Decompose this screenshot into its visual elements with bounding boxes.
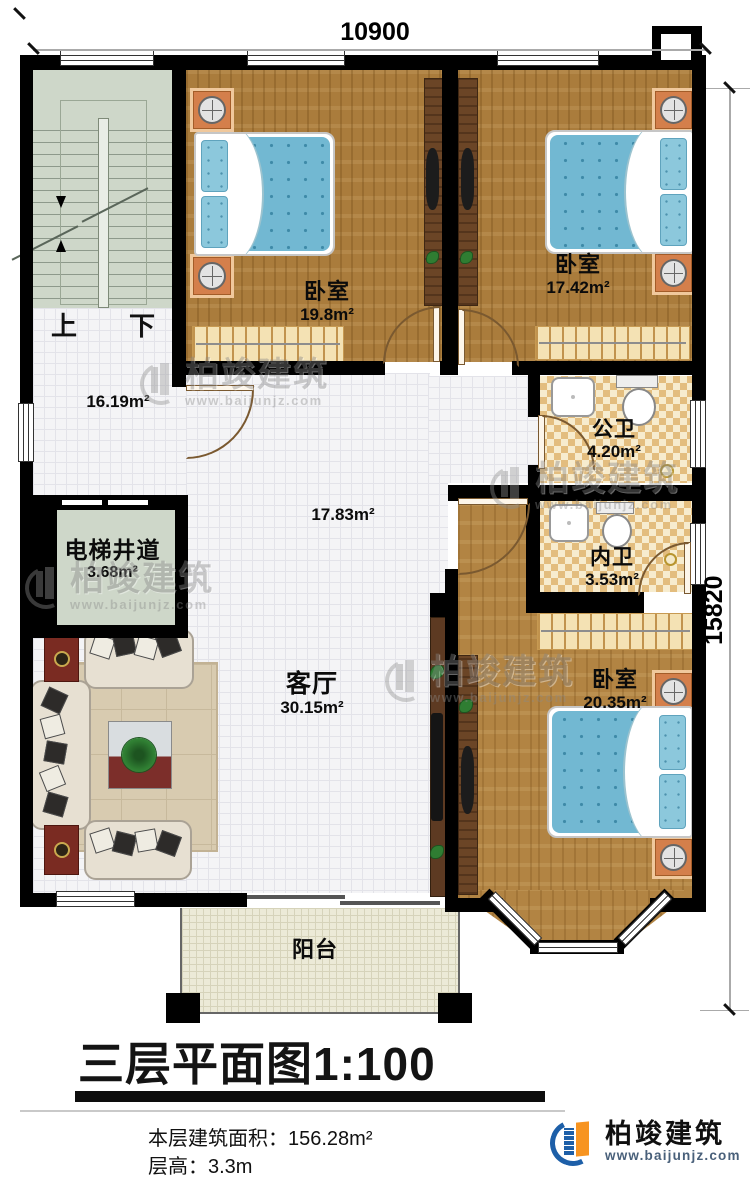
plan-scale: 1:100 bbox=[313, 1038, 436, 1090]
dimension-line-right bbox=[729, 88, 731, 1010]
wall bbox=[172, 55, 186, 387]
room-name: 内卫 bbox=[566, 546, 658, 570]
window bbox=[56, 891, 135, 907]
wall bbox=[692, 55, 706, 910]
company-logo: 柏竣建筑 www.baijunjz.com bbox=[550, 1112, 746, 1176]
floor-plan: 卧室 19.8m² 卧室 17.42m² 卧室 20.35m² 公卫 4.20m… bbox=[0, 0, 750, 1182]
nightstand bbox=[190, 88, 234, 132]
balcony-post bbox=[166, 993, 200, 1023]
plan-title-text: 三层平面图 bbox=[78, 1038, 313, 1090]
room-label-living: 客厅 30.15m² bbox=[252, 670, 372, 717]
pillow bbox=[660, 194, 687, 246]
wardrobe bbox=[535, 326, 690, 360]
company-logo-icon bbox=[550, 1118, 598, 1168]
sliding-door bbox=[340, 901, 440, 905]
wall bbox=[172, 361, 385, 375]
room-area: 17.42m² bbox=[508, 278, 648, 297]
toilet-icon bbox=[602, 514, 632, 548]
bed bbox=[194, 132, 335, 256]
toilet-tank-icon bbox=[596, 502, 634, 514]
room-label-corridor: 17.83m² bbox=[278, 505, 408, 524]
room-name: 电梯井道 bbox=[40, 538, 185, 564]
wall bbox=[132, 893, 247, 907]
tv-icon bbox=[431, 713, 443, 821]
room-name: 客厅 bbox=[252, 670, 372, 698]
wall bbox=[20, 55, 33, 905]
chair bbox=[426, 148, 439, 210]
lamp-icon bbox=[660, 259, 687, 287]
wall bbox=[512, 361, 705, 375]
wardrobe bbox=[537, 613, 694, 650]
chimney-flue bbox=[661, 34, 691, 60]
room-name: 卧室 bbox=[508, 253, 648, 278]
wall bbox=[440, 361, 458, 375]
floor-area-text: 本层建筑面积：156.28m² bbox=[148, 1122, 373, 1151]
dimension-right-value: 15820 bbox=[700, 515, 729, 645]
company-name: 柏竣建筑 bbox=[605, 1112, 725, 1151]
bay-window bbox=[538, 942, 618, 953]
side-table bbox=[44, 636, 79, 682]
nightstand bbox=[652, 836, 695, 879]
divider-line bbox=[20, 1110, 565, 1112]
toilet-tank-icon bbox=[616, 375, 658, 388]
elevator-door-mark bbox=[62, 500, 102, 505]
plan-title: 三层平面图1:100 bbox=[78, 1028, 436, 1094]
company-url: www.baijunjz.com bbox=[605, 1148, 741, 1163]
room-area: 19.8m² bbox=[257, 305, 397, 324]
bed bbox=[545, 130, 694, 254]
dimension-tick bbox=[13, 7, 26, 20]
bed bbox=[547, 706, 693, 838]
window bbox=[497, 50, 599, 66]
lamp-icon bbox=[198, 96, 226, 124]
room-area: 4.20m² bbox=[568, 442, 660, 461]
wardrobe-rod bbox=[541, 630, 690, 632]
room-label-inner-bath: 内卫 3.53m² bbox=[566, 546, 658, 589]
stairs-down-label: 下 bbox=[129, 306, 155, 343]
dimension-top-value: 10900 bbox=[300, 18, 450, 47]
room-label-elevator: 电梯井道 3.68m² bbox=[40, 538, 185, 582]
room-name: 公卫 bbox=[568, 418, 660, 442]
elevator-door-mark bbox=[108, 500, 148, 505]
floor-drain-icon bbox=[660, 464, 674, 478]
wall bbox=[430, 593, 458, 617]
wall bbox=[445, 569, 458, 905]
sliding-door bbox=[247, 895, 345, 899]
lamp-icon bbox=[54, 842, 70, 858]
dimension-ext-line bbox=[700, 1010, 749, 1011]
window bbox=[247, 50, 345, 66]
window bbox=[18, 403, 34, 462]
room-label-balcony: 阳台 bbox=[275, 938, 355, 963]
room-name: 卧室 bbox=[545, 668, 685, 693]
wardrobe bbox=[192, 326, 344, 362]
title-underline-bar bbox=[75, 1091, 545, 1102]
pillow bbox=[660, 138, 687, 190]
room-area: 30.15m² bbox=[252, 698, 372, 717]
sink-icon bbox=[549, 504, 589, 542]
lamp-icon bbox=[198, 262, 226, 290]
balcony-post bbox=[438, 993, 472, 1023]
staircase bbox=[33, 68, 172, 308]
nightstand bbox=[652, 88, 695, 132]
floor-height-text: 层高：3.3m bbox=[148, 1150, 252, 1179]
room-area: 16.19m² bbox=[86, 392, 149, 411]
pillow bbox=[201, 140, 228, 192]
sink-icon bbox=[551, 377, 595, 417]
lamp-icon bbox=[54, 651, 70, 667]
nightstand bbox=[652, 251, 695, 295]
room-label-bedroom2: 卧室 17.42m² bbox=[508, 253, 648, 297]
dimension-line-top bbox=[33, 49, 706, 51]
chair bbox=[461, 746, 474, 814]
pillow bbox=[659, 715, 686, 770]
stair-direction-arrow bbox=[56, 196, 66, 208]
wardrobe-rod bbox=[196, 343, 340, 345]
nightstand bbox=[190, 254, 234, 298]
chair bbox=[461, 148, 474, 210]
wall bbox=[526, 592, 644, 613]
lamp-icon bbox=[660, 844, 687, 871]
stairs-up-label: 上 bbox=[51, 306, 77, 343]
lamp-icon bbox=[660, 96, 687, 124]
room-area: 20.35m² bbox=[545, 693, 685, 712]
room-area: 17.83m² bbox=[311, 505, 374, 524]
room-area: 3.68m² bbox=[40, 564, 185, 582]
room-label-public-bath: 公卫 4.20m² bbox=[568, 418, 660, 461]
window bbox=[690, 400, 706, 468]
room-name: 阳台 bbox=[275, 938, 355, 963]
room-label-bedroom1: 卧室 19.8m² bbox=[257, 280, 397, 324]
sofa-pillow bbox=[43, 740, 67, 764]
room-name: 卧室 bbox=[257, 280, 397, 305]
wall bbox=[528, 375, 540, 417]
stair-direction-arrow bbox=[56, 240, 66, 252]
room-label-hall: 16.19m² bbox=[58, 392, 178, 411]
wall bbox=[20, 893, 58, 907]
wardrobe-rod bbox=[539, 342, 686, 344]
pillow bbox=[201, 196, 228, 248]
room-area: 3.53m² bbox=[566, 570, 658, 589]
plant-icon bbox=[122, 738, 156, 772]
side-table bbox=[44, 825, 79, 875]
corridor-floor-right bbox=[428, 376, 540, 483]
room-label-bedroom3: 卧室 20.35m² bbox=[545, 668, 685, 712]
corridor-living-floor bbox=[186, 373, 430, 893]
window bbox=[60, 50, 154, 66]
pillow bbox=[659, 774, 686, 829]
wall bbox=[442, 55, 458, 362]
